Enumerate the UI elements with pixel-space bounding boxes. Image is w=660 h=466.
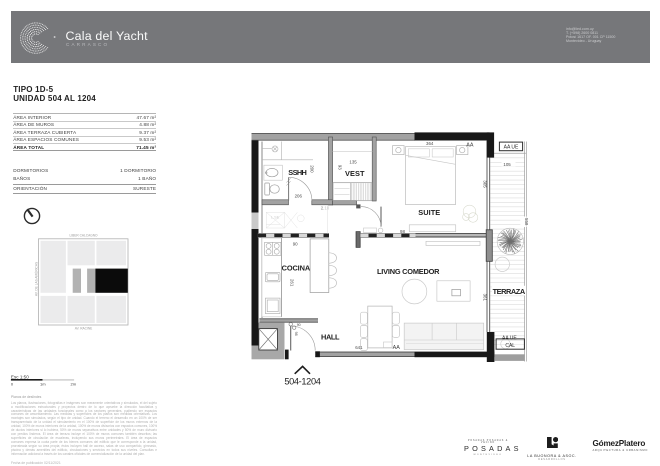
svg-text:90: 90 [293, 241, 298, 246]
svg-text:1m: 1m [40, 381, 46, 386]
svg-text:504-1204: 504-1204 [284, 377, 321, 387]
svg-text:98: 98 [294, 332, 298, 336]
svg-text:AV. RACINE: AV. RACINE [75, 326, 93, 330]
svg-text:105: 105 [503, 162, 511, 167]
svg-text:206: 206 [295, 194, 303, 199]
svg-text:93: 93 [337, 165, 342, 170]
svg-text:305: 305 [483, 180, 488, 188]
svg-text:2.10: 2.10 [321, 206, 330, 211]
svg-text:L.SE: L.SE [271, 215, 280, 219]
svg-text:98: 98 [400, 229, 405, 234]
svg-text:364: 364 [426, 141, 434, 146]
svg-text:0: 0 [11, 381, 14, 386]
svg-text:135: 135 [349, 159, 357, 164]
svg-text:200: 200 [310, 165, 315, 173]
svg-text:COCINA: COCINA [282, 264, 311, 273]
svg-text:LIBER CALCAGNO: LIBER CALCAGNO [70, 233, 99, 237]
svg-text:641: 641 [355, 345, 363, 350]
svg-text:LIVING COMEDOR: LIVING COMEDOR [377, 267, 440, 276]
svg-text:90: 90 [297, 323, 301, 327]
svg-text:AA: AA [393, 345, 401, 351]
svg-text:TERRAZA: TERRAZA [493, 287, 526, 296]
svg-text:AA UE: AA UE [504, 145, 519, 151]
svg-text:261: 261 [289, 279, 294, 287]
svg-text:558: 558 [524, 218, 529, 226]
svg-text:SSHH: SSHH [288, 168, 307, 177]
svg-text:361: 361 [482, 294, 487, 302]
svg-text:AV. DE LAS AMÉRICAS: AV. DE LAS AMÉRICAS [33, 262, 38, 296]
svg-text:Esc 1:50: Esc 1:50 [11, 374, 29, 379]
svg-text:CAL: CAL [505, 343, 515, 349]
svg-text:AA: AA [466, 142, 474, 148]
svg-text:SUITE: SUITE [418, 208, 440, 217]
svg-text:2m: 2m [71, 381, 77, 386]
svg-text:HALL: HALL [321, 333, 340, 342]
svg-text:VEST: VEST [345, 169, 365, 178]
svg-text:AA UE: AA UE [502, 335, 517, 341]
